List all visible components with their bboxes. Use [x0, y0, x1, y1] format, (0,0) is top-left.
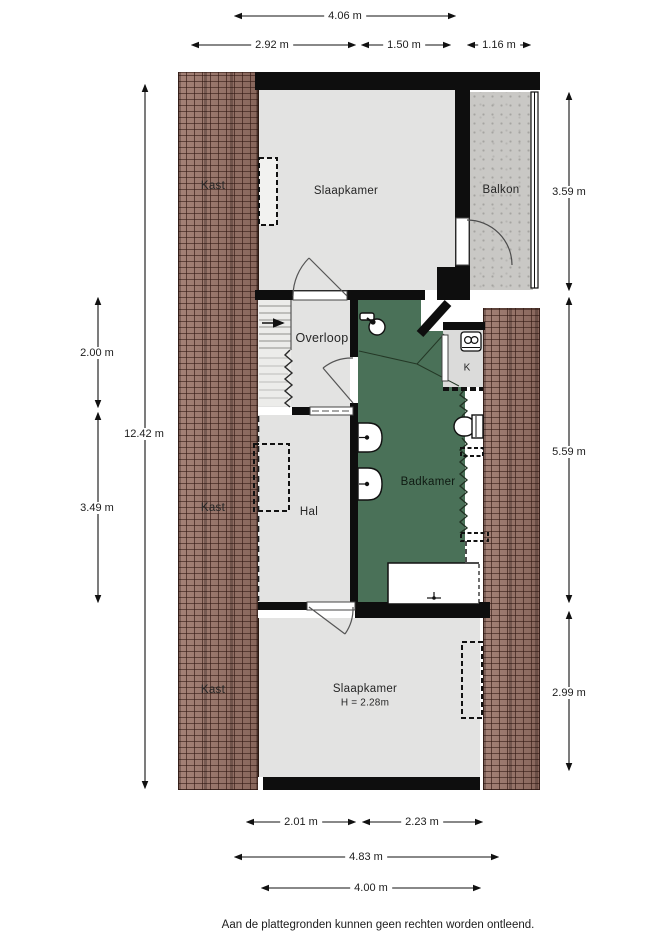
wall-slaapkamer-balkon	[455, 72, 470, 290]
wall-badkamer-left	[350, 300, 358, 607]
dim-right-1: 3.59 m	[548, 186, 590, 198]
room-k	[443, 330, 483, 387]
wall-k-top	[443, 322, 485, 330]
label-slaapkamer-bottom: Slaapkamer	[333, 683, 397, 695]
wall-balkon-bottom	[437, 267, 470, 300]
dim-left-2: 3.49 m	[76, 502, 118, 514]
dim-bottom-3: 4.83 m	[345, 851, 387, 863]
label-k: K	[464, 363, 471, 374]
label-kast-top: Kast	[201, 180, 225, 192]
wall-top	[255, 72, 540, 90]
floorplan-canvas: Kast Slaapkamer Balkon Overloop K Hal Ba…	[0, 0, 667, 944]
edge-slaapkamer-top-left	[258, 90, 259, 290]
dim-left-total: 12.42 m	[120, 428, 168, 440]
wall-building-bottom	[263, 777, 480, 790]
wall-hal-bottom	[258, 602, 358, 610]
wall-slaapkamer-top-bottom	[255, 290, 425, 300]
room-overloop	[258, 300, 350, 407]
dim-top-3: 1.16 m	[478, 39, 520, 51]
label-kast-mid: Kast	[201, 502, 225, 514]
dim-right-3: 2.99 m	[548, 687, 590, 699]
dim-bottom-2: 2.23 m	[401, 816, 443, 828]
label-balkon: Balkon	[483, 184, 520, 196]
dim-top-1: 2.92 m	[251, 39, 293, 51]
label-slaapkamer-top: Slaapkamer	[314, 185, 378, 197]
dim-right-2: 5.59 m	[548, 446, 590, 458]
dim-left-1: 2.00 m	[76, 347, 118, 359]
label-kast-bottom: Kast	[201, 684, 225, 696]
label-badkamer: Badkamer	[401, 476, 456, 488]
roof-slope-right	[483, 308, 540, 790]
label-slaapkamer-bottom-height: H = 2.28m	[341, 698, 389, 709]
dim-top-2: 1.50 m	[383, 39, 425, 51]
wall-overloop-hal	[292, 407, 358, 415]
label-overloop: Overloop	[295, 331, 348, 345]
dim-bottom-1: 2.01 m	[280, 816, 322, 828]
disclaimer-text: Aan de plattegronden kunnen geen rechten…	[222, 919, 535, 931]
label-hal: Hal	[300, 506, 318, 518]
dim-bottom-4: 4.00 m	[350, 882, 392, 894]
wall-badkamer-bottom	[355, 602, 490, 618]
edge-slaapkamer-bottom-left	[258, 618, 259, 777]
dim-top-total: 4.06 m	[324, 10, 366, 22]
